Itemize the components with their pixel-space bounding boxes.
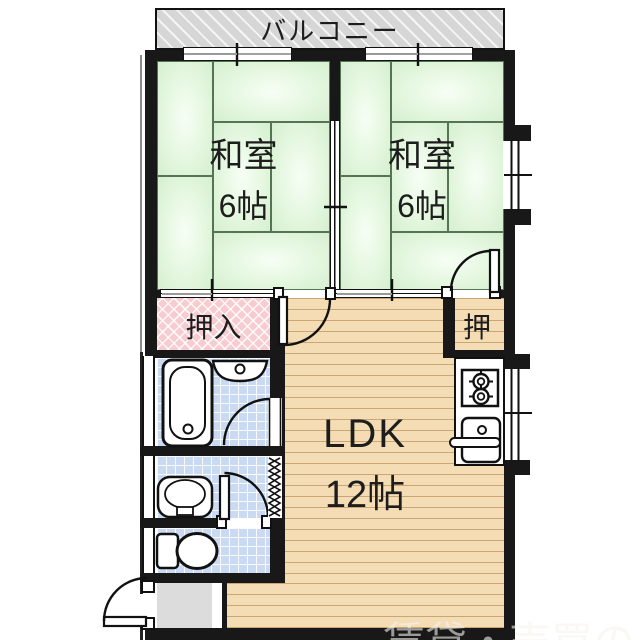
room-size-washitsu-right: 6帖	[340, 181, 504, 227]
wall-between-tatami	[330, 50, 340, 120]
bay-window-top-stub-1	[504, 125, 531, 141]
ldk-door-opening	[277, 290, 331, 298]
sliding-window-right	[365, 47, 473, 61]
entrance-door-swing	[104, 578, 154, 629]
wall-toilet-genkan	[140, 573, 272, 583]
tatami-mat	[391, 232, 504, 290]
room-size-washitsu-left: 6帖	[157, 181, 330, 227]
fusuma-tatami-right-ldk	[335, 289, 448, 298]
wall-left-outer-line	[140, 55, 142, 355]
room-label-ldk: LDK	[295, 412, 435, 457]
genkan-floor	[157, 583, 212, 628]
tatami-mat	[213, 61, 330, 122]
watermark: 賃貸・売買の	[383, 609, 635, 640]
bathroom-floor	[157, 358, 270, 448]
entrance-opening	[138, 594, 146, 618]
washroom-floor	[157, 456, 270, 518]
fusuma-between-tatami	[330, 120, 340, 290]
floorplan: バルコニー	[0, 0, 640, 640]
genkan-step	[212, 583, 222, 628]
wall-water-right	[270, 298, 285, 583]
bay-window-bottom-stub-2	[504, 460, 530, 475]
balcony: バルコニー	[155, 8, 505, 50]
bay-window-opening-1	[503, 141, 516, 209]
room-label-washitsu-left: 和室	[157, 128, 330, 177]
closet-right-door-opening	[447, 290, 493, 298]
balcony-label: バルコニー	[260, 11, 399, 48]
wall-closet-left-bottom	[145, 350, 285, 358]
room-size-ldk: 12帖	[295, 463, 435, 518]
left-wall-window-wash	[142, 456, 155, 518]
toilet-floor	[157, 528, 270, 573]
fusuma-closet-left	[160, 289, 278, 298]
tatami-mat	[391, 61, 504, 122]
tatami-mat	[213, 232, 330, 290]
wall-left-upper	[145, 50, 157, 358]
wall-bath-wash	[140, 446, 285, 456]
kitchen-counter	[454, 357, 505, 466]
toilet-door-opening	[225, 518, 268, 528]
room-label-washitsu-right: 和室	[340, 128, 504, 177]
closet-left-label: 押入	[157, 306, 270, 346]
left-wall-window-bath	[142, 356, 155, 446]
bay-window-bottom-stub-1	[504, 209, 531, 225]
sliding-window-left	[183, 47, 292, 61]
closet-right-label: 押	[450, 306, 504, 346]
bay-window-top-stub-2	[504, 354, 530, 369]
left-wall-window-toilet	[142, 528, 155, 573]
genkan-step-edge	[222, 583, 227, 628]
